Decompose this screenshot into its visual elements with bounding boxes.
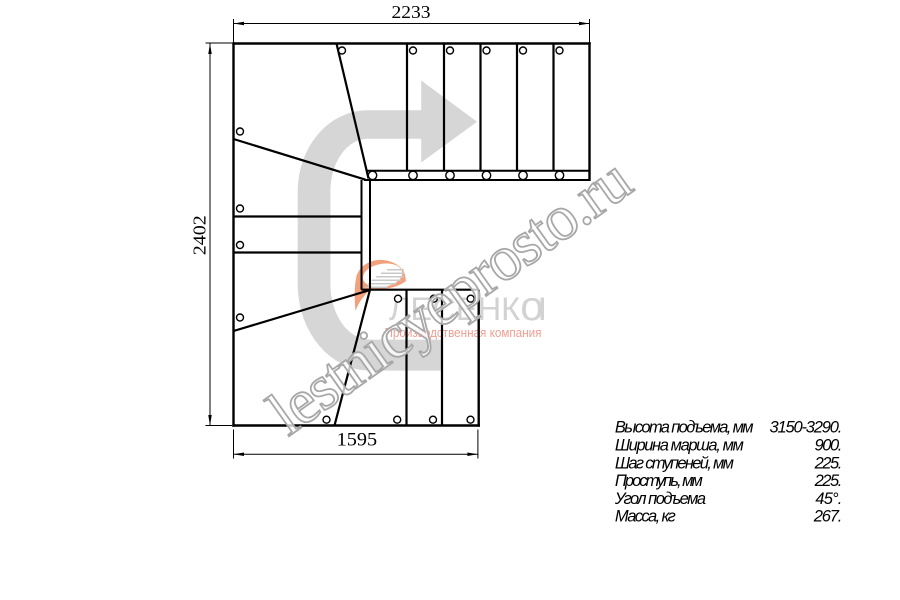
svg-text:225.: 225. bbox=[814, 472, 843, 490]
svg-text:Высота подъема, мм: Высота подъема, мм bbox=[615, 419, 754, 437]
svg-text:1595: 1595 bbox=[337, 430, 378, 451]
svg-text:267.: 267. bbox=[813, 508, 843, 526]
svg-text:Шаг ступеней, мм: Шаг ступеней, мм bbox=[615, 454, 734, 472]
svg-text:900.: 900. bbox=[815, 437, 843, 455]
svg-text:Ширина марша, мм: Ширина марша, мм bbox=[615, 437, 744, 455]
svg-text:45°.: 45°. bbox=[815, 490, 842, 508]
svg-text:Угол подъема: Угол подъема bbox=[614, 490, 706, 508]
svg-text:Проступь, мм: Проступь, мм bbox=[615, 472, 703, 490]
svg-text:225.: 225. bbox=[814, 454, 843, 472]
svg-text:2233: 2233 bbox=[392, 2, 431, 22]
svg-text:3150-3290.: 3150-3290. bbox=[770, 419, 843, 437]
svg-text:Масса, кг: Масса, кг bbox=[615, 508, 676, 526]
svg-text:2402: 2402 bbox=[190, 215, 210, 255]
